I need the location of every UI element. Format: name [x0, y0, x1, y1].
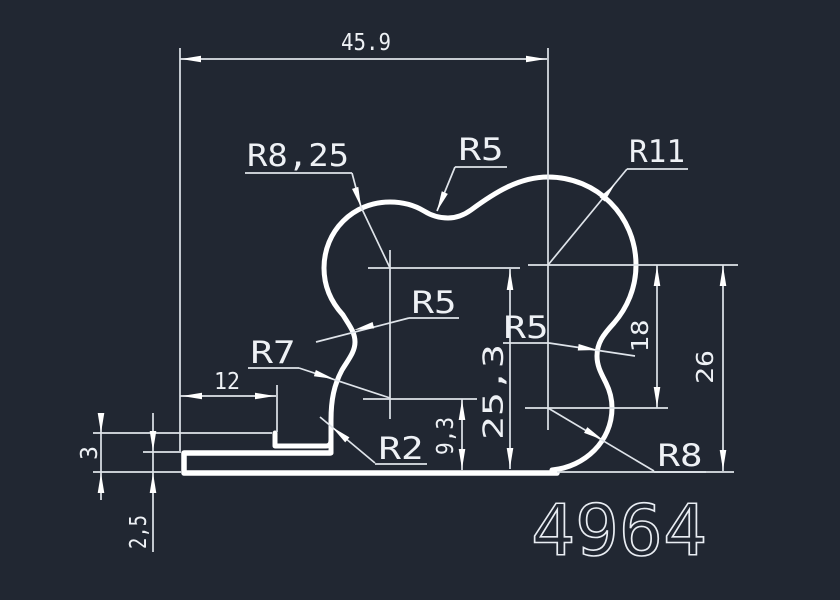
dim-overall-width[interactable]: 45.9	[180, 30, 547, 62]
extension-lines	[93, 48, 738, 472]
arrowhead	[150, 431, 157, 451]
arrowhead	[459, 449, 466, 469]
label-r2[interactable]: R2	[320, 417, 427, 467]
cad-drawing-canvas[interactable]: 45.9 12 3 2,5 9,3 25,3 18	[0, 0, 840, 600]
label-r8-25-text[interactable]: R8,25	[247, 138, 349, 174]
label-r11-text[interactable]: R11	[629, 134, 685, 170]
profile-flange-path[interactable]	[184, 453, 557, 473]
label-r8-text[interactable]: R8	[658, 438, 703, 474]
arrowhead	[434, 191, 448, 212]
arrowhead	[507, 448, 514, 468]
dim-overall-width-text[interactable]: 45.9	[341, 30, 391, 56]
dim-step-height[interactable]: 3	[77, 413, 104, 500]
arrowhead	[526, 56, 546, 63]
label-r5-top-text[interactable]: R5	[459, 132, 504, 168]
dim-height-main-text[interactable]: 25,3	[477, 344, 510, 440]
label-r7-leader	[299, 368, 390, 398]
part-number-text[interactable]: 4964	[531, 490, 707, 572]
label-r2-leader	[320, 417, 375, 463]
arrowhead	[459, 400, 466, 420]
arrowhead	[150, 473, 157, 493]
arrowhead	[352, 187, 364, 208]
label-r5-right-text[interactable]: R5	[504, 310, 549, 346]
arrowhead	[720, 266, 727, 286]
dim-flange-length-text[interactable]: 12	[214, 369, 240, 395]
label-r7-text[interactable]: R7	[251, 335, 296, 371]
dim-height-main[interactable]: 25,3	[477, 269, 514, 469]
arrowhead	[98, 413, 105, 433]
label-r5-left[interactable]: R5	[316, 285, 459, 342]
dim-flange-length[interactable]: 12	[180, 369, 276, 399]
dim-height-small[interactable]: 9,3	[433, 399, 465, 470]
arrowhead	[255, 393, 275, 400]
arrowhead	[98, 473, 105, 493]
label-r2-text[interactable]: R2	[379, 431, 424, 467]
label-r5-top[interactable]: R5	[434, 132, 507, 212]
arrowhead	[654, 266, 661, 286]
profile-outline[interactable]	[184, 177, 636, 473]
label-r8-leader	[548, 408, 654, 471]
label-r11[interactable]: R11	[548, 134, 688, 265]
dim-height-right-outer-text[interactable]: 26	[693, 350, 719, 384]
arrowhead	[654, 387, 661, 407]
label-r5-left-text[interactable]: R5	[412, 285, 457, 321]
arrowhead	[182, 393, 202, 400]
dim-step-height-text[interactable]: 3	[77, 446, 103, 460]
dim-flange-thickness-text[interactable]: 2,5	[126, 515, 152, 549]
arrowhead	[314, 370, 335, 382]
label-r5-right[interactable]: R5	[503, 310, 635, 356]
arrowhead	[181, 56, 201, 63]
arrowhead	[507, 270, 514, 290]
dim-height-small-text[interactable]: 9,3	[433, 417, 459, 455]
dim-height-right-inner-text[interactable]: 18	[628, 320, 654, 353]
arrowhead	[720, 450, 727, 470]
cad-viewport[interactable]: 45.9 12 3 2,5 9,3 25,3 18	[0, 0, 840, 600]
label-r7[interactable]: R7	[248, 335, 390, 398]
label-r5-left-leader	[316, 318, 409, 342]
